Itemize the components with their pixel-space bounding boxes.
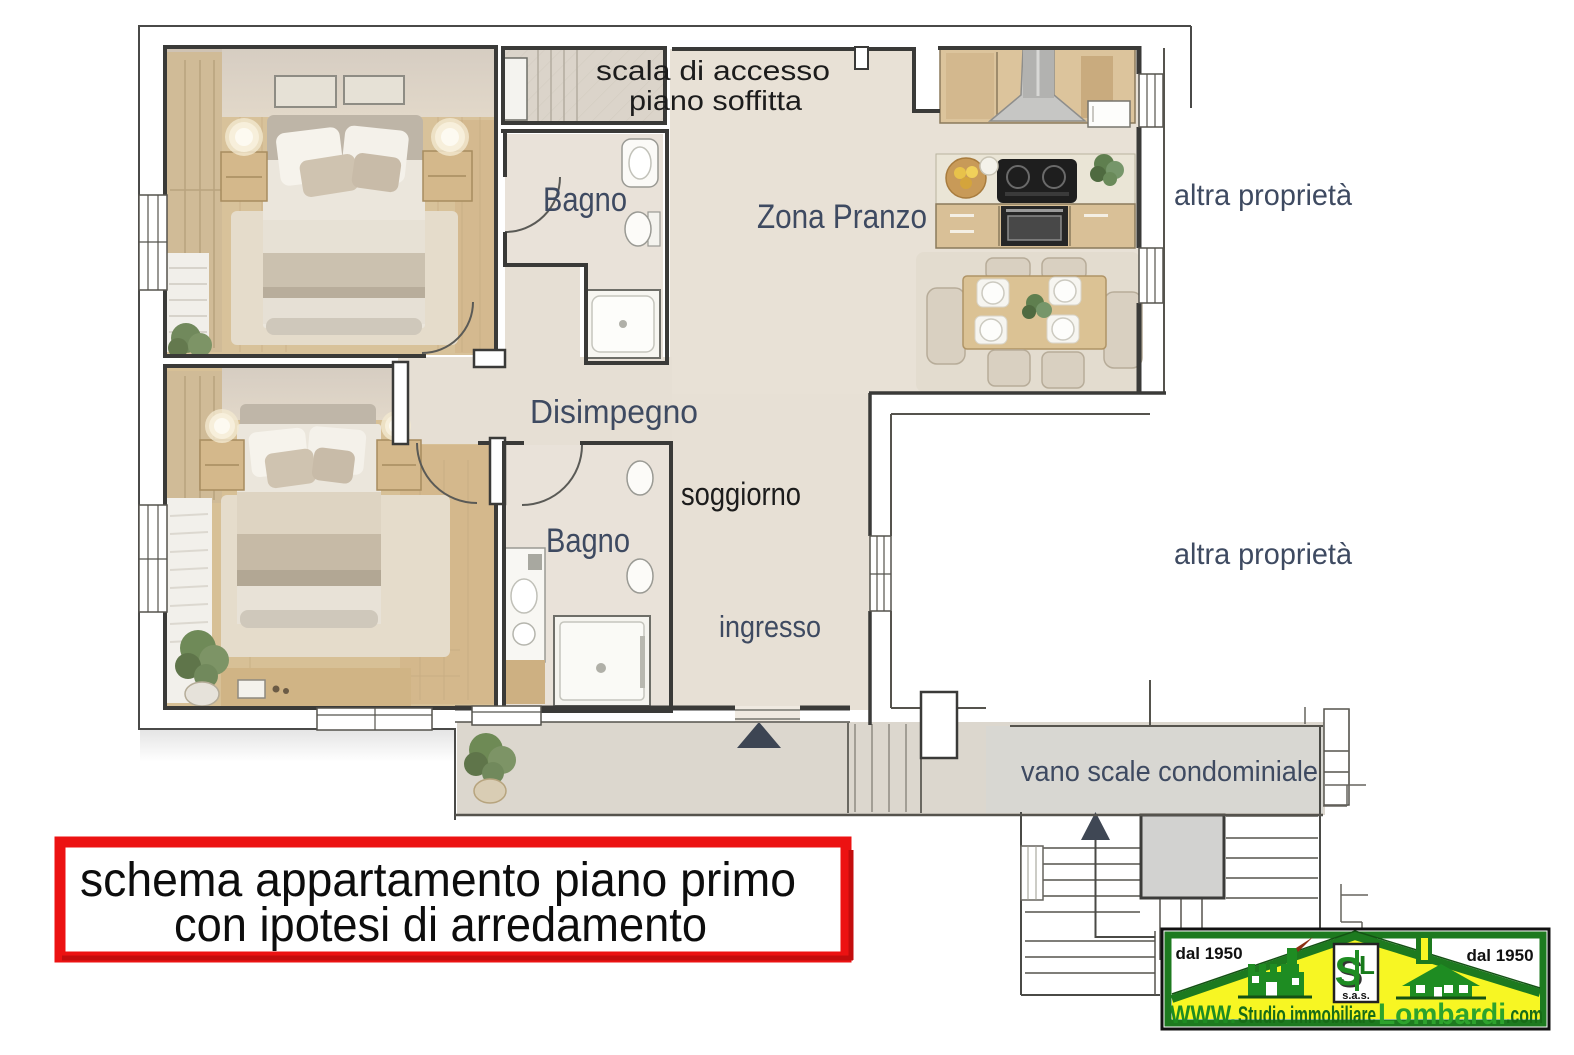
svg-text:WWW.: WWW. — [1170, 1001, 1236, 1029]
svg-text:altra proprietà: altra proprietà — [1174, 538, 1352, 571]
svg-text:altra proprietà: altra proprietà — [1174, 179, 1352, 212]
svg-text:Bagno: Bagno — [543, 181, 627, 219]
svg-text:vano scale condominiale: vano scale condominiale — [1021, 756, 1318, 788]
svg-text:piano soffitta: piano soffitta — [629, 85, 802, 116]
svg-text:con ipotesi di arredamento: con ipotesi di arredamento — [174, 899, 707, 952]
svg-text:s.a.s.: s.a.s. — [1342, 990, 1370, 1002]
svg-text:dal 1950: dal 1950 — [1175, 944, 1242, 963]
svg-text:L: L — [1359, 950, 1375, 980]
svg-text:scala di accesso: scala di accesso — [596, 55, 830, 86]
svg-text:Lombardi: Lombardi — [1378, 998, 1506, 1031]
svg-text:Studio immobiliare: Studio immobiliare — [1238, 1002, 1376, 1029]
svg-text:soggiorno: soggiorno — [681, 476, 801, 512]
svg-text:Disimpegno: Disimpegno — [530, 393, 698, 430]
svg-text:ingresso: ingresso — [719, 609, 821, 644]
svg-text:Zona Pranzo: Zona Pranzo — [757, 198, 927, 236]
svg-text:.com: .com — [1506, 1002, 1543, 1029]
svg-text:Bagno: Bagno — [546, 522, 630, 560]
svg-text:dal 1950: dal 1950 — [1466, 946, 1533, 965]
